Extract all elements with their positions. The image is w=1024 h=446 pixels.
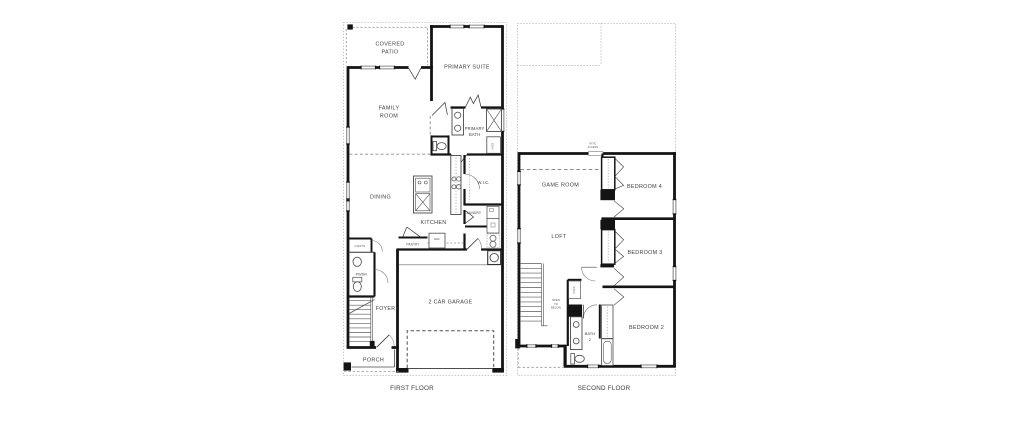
svg-text:PRIMARY: PRIMARY	[465, 126, 485, 131]
svg-text:KITCHEN: KITCHEN	[420, 220, 446, 226]
svg-text:BEDROOM 3: BEDROOM 3	[627, 250, 662, 256]
svg-text:PWDR: PWDR	[356, 273, 368, 277]
svg-text:BATH: BATH	[585, 331, 596, 336]
svg-text:2 CAR GARAGE: 2 CAR GARAGE	[428, 299, 472, 305]
svg-text:REF: REF	[434, 237, 440, 241]
svg-text:BELOW: BELOW	[551, 306, 561, 310]
svg-text:COATS: COATS	[354, 244, 365, 248]
svg-text:LINEN: LINEN	[573, 286, 576, 294]
svg-text:PANTRY: PANTRY	[406, 242, 420, 246]
svg-text:BATH: BATH	[469, 132, 480, 137]
svg-text:FOYER: FOYER	[376, 306, 396, 312]
svg-text:TO: TO	[554, 302, 558, 306]
svg-text:FIRST FLOOR: FIRST FLOOR	[390, 385, 434, 392]
svg-text:ROOM: ROOM	[380, 113, 398, 119]
svg-text:LINEN: LINEN	[492, 142, 495, 150]
svg-text:PRIMARY SUITE: PRIMARY SUITE	[444, 64, 490, 70]
svg-text:ACCESS: ACCESS	[588, 146, 599, 149]
svg-text:PATIO: PATIO	[381, 49, 398, 55]
svg-text:COVERED: COVERED	[375, 41, 404, 47]
svg-text:LOFT: LOFT	[551, 234, 567, 240]
svg-text:BEDROOM 2: BEDROOM 2	[629, 325, 664, 331]
svg-text:LAUNDRY: LAUNDRY	[465, 211, 482, 215]
svg-text:FAMILY: FAMILY	[379, 105, 400, 111]
svg-text:2: 2	[589, 337, 591, 342]
svg-text:DINING: DINING	[370, 194, 391, 200]
svg-text:SECOND FLOOR: SECOND FLOOR	[578, 385, 631, 392]
svg-text:OPEN: OPEN	[552, 298, 560, 302]
svg-text:PORCH: PORCH	[363, 357, 384, 363]
svg-text:W.I.C.: W.I.C.	[478, 180, 490, 185]
svg-text:BEDROOM 4: BEDROOM 4	[627, 184, 662, 190]
svg-text:GAME ROOM: GAME ROOM	[542, 182, 579, 188]
